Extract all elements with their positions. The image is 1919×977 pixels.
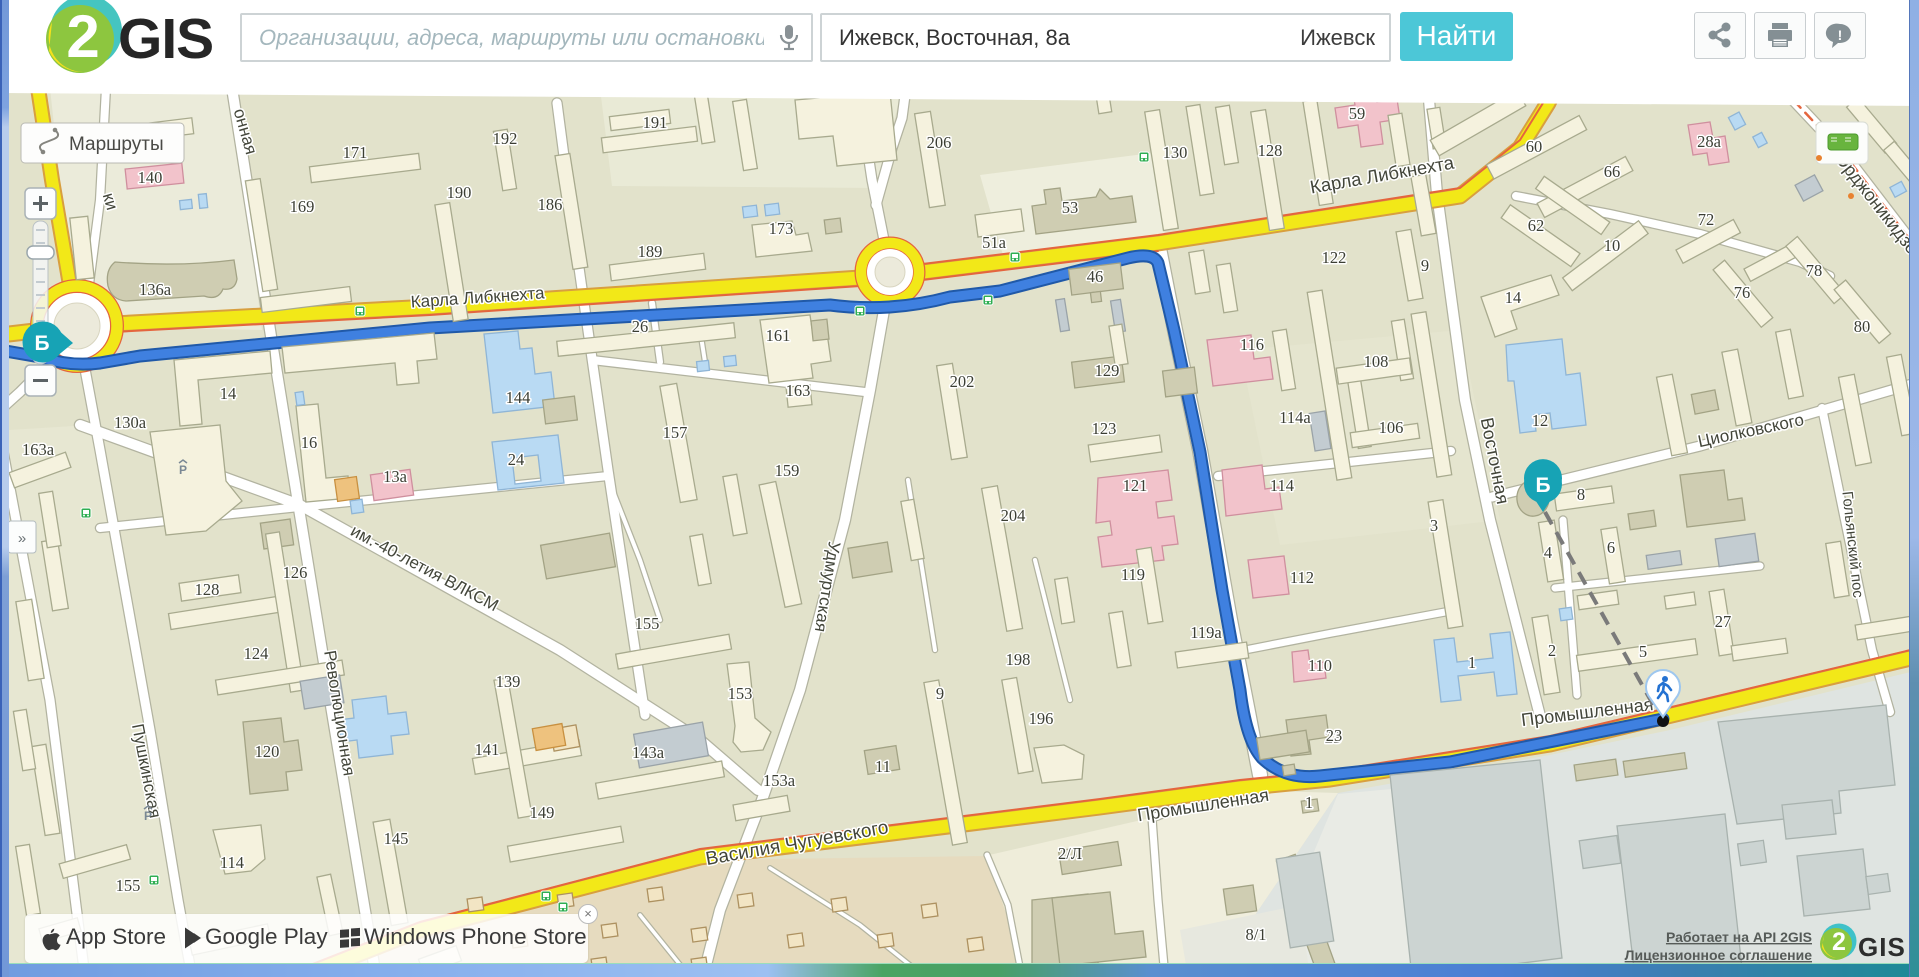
svg-text:119: 119 <box>1121 565 1145 584</box>
svg-text:159: 159 <box>775 461 800 480</box>
svg-text:126: 126 <box>283 563 308 582</box>
svg-text:121: 121 <box>1123 476 1148 495</box>
svg-text:163a: 163a <box>22 440 55 459</box>
svg-text:169: 169 <box>290 197 315 216</box>
svg-text:114: 114 <box>1270 476 1294 495</box>
svg-text:157: 157 <box>663 423 688 442</box>
svg-text:163: 163 <box>786 381 811 400</box>
svg-text:155: 155 <box>116 876 141 895</box>
svg-text:Б: Б <box>1535 474 1550 497</box>
svg-text:Р: Р <box>179 463 187 477</box>
svg-text:Б: Б <box>34 332 49 355</box>
svg-text:119а: 119а <box>1190 623 1222 642</box>
svg-text:123: 123 <box>1092 419 1117 438</box>
svg-text:72: 72 <box>1698 210 1715 229</box>
svg-text:28а: 28а <box>1697 132 1722 151</box>
svg-text:122: 122 <box>1322 248 1347 267</box>
svg-text:26: 26 <box>632 317 649 336</box>
svg-text:2: 2 <box>1548 641 1556 660</box>
svg-text:186: 186 <box>538 195 563 214</box>
svg-text:9: 9 <box>1421 256 1429 275</box>
svg-text:12: 12 <box>1532 411 1549 430</box>
svg-text:114а: 114а <box>1279 408 1311 427</box>
svg-text:173: 173 <box>769 219 794 238</box>
svg-text:141: 141 <box>475 740 500 759</box>
svg-text:124: 124 <box>244 644 269 663</box>
svg-text:144: 144 <box>506 388 531 407</box>
svg-text:60: 60 <box>1526 137 1543 156</box>
svg-text:114: 114 <box>220 853 244 872</box>
svg-text:153: 153 <box>728 684 753 703</box>
svg-text:51a: 51a <box>982 233 1007 252</box>
svg-text:140: 140 <box>138 168 163 187</box>
svg-text:!: ! <box>1838 27 1843 43</box>
svg-text:3: 3 <box>1430 516 1438 535</box>
svg-text:62: 62 <box>1528 216 1545 235</box>
svg-text:2: 2 <box>1832 928 1846 956</box>
svg-text:14: 14 <box>1505 288 1522 307</box>
svg-text:171: 171 <box>343 143 368 162</box>
svg-text:153a: 153a <box>763 771 796 790</box>
svg-text:78: 78 <box>1806 261 1823 280</box>
svg-text:143a: 143a <box>632 743 665 762</box>
svg-text:196: 196 <box>1029 709 1054 728</box>
svg-text:23: 23 <box>1326 726 1343 745</box>
svg-text:46: 46 <box>1087 267 1104 286</box>
svg-text:6: 6 <box>1607 538 1615 557</box>
svg-text:192: 192 <box>493 129 518 148</box>
svg-text:4: 4 <box>1544 543 1552 562</box>
svg-text:Р: Р <box>144 809 152 823</box>
svg-text:2/Л: 2/Л <box>1058 844 1082 863</box>
svg-text:9: 9 <box>936 684 944 703</box>
svg-text:145: 145 <box>384 829 409 848</box>
svg-text:2: 2 <box>66 3 99 70</box>
svg-text:13a: 13a <box>383 467 408 486</box>
svg-text:110: 110 <box>1308 656 1332 675</box>
svg-text:27: 27 <box>1715 612 1732 631</box>
svg-text:5: 5 <box>1639 642 1647 661</box>
svg-text:Работает на API 2GIS: Работает на API 2GIS <box>1666 929 1812 945</box>
svg-text:202: 202 <box>950 372 975 391</box>
svg-text:108: 108 <box>1364 352 1389 371</box>
svg-text:80: 80 <box>1854 317 1871 336</box>
svg-text:14: 14 <box>220 384 237 403</box>
svg-text:106: 106 <box>1379 418 1404 437</box>
svg-text:120: 120 <box>255 742 280 761</box>
svg-text:11: 11 <box>875 757 891 776</box>
svg-text:130a: 130a <box>114 413 147 432</box>
svg-text:112: 112 <box>1290 568 1314 587</box>
svg-text:139: 139 <box>496 672 521 691</box>
svg-text:Лицензионное соглашение: Лицензионное соглашение <box>1625 947 1813 963</box>
svg-text:»: » <box>18 530 26 547</box>
svg-text:24: 24 <box>508 450 525 469</box>
svg-text:66: 66 <box>1604 162 1621 181</box>
svg-text:189: 189 <box>638 242 663 261</box>
svg-text:8/1: 8/1 <box>1245 925 1266 944</box>
svg-text:116: 116 <box>1240 335 1264 354</box>
svg-text:136a: 136a <box>139 280 172 299</box>
svg-text:128: 128 <box>195 580 220 599</box>
svg-text:204: 204 <box>1001 506 1026 525</box>
svg-text:161: 161 <box>766 326 791 345</box>
svg-text:8: 8 <box>1577 485 1585 504</box>
svg-text:155: 155 <box>635 614 660 633</box>
svg-text:16: 16 <box>301 433 318 452</box>
svg-text:1: 1 <box>1305 793 1313 812</box>
svg-text:59: 59 <box>1349 104 1366 123</box>
svg-text:191: 191 <box>643 113 668 132</box>
svg-text:Маршруты: Маршруты <box>69 134 164 155</box>
svg-text:76: 76 <box>1734 283 1751 302</box>
svg-text:129: 129 <box>1095 361 1120 380</box>
svg-text:198: 198 <box>1006 650 1031 669</box>
svg-text:53: 53 <box>1062 198 1079 217</box>
svg-text:GIS: GIS <box>118 7 213 71</box>
svg-text:128: 128 <box>1258 141 1283 160</box>
svg-text:190: 190 <box>447 183 472 202</box>
svg-text:130: 130 <box>1163 143 1188 162</box>
svg-text:10: 10 <box>1604 236 1621 255</box>
svg-text:GIS: GIS <box>1858 932 1906 962</box>
svg-text:206: 206 <box>927 133 952 152</box>
svg-text:1: 1 <box>1468 653 1476 672</box>
svg-text:149: 149 <box>530 803 555 822</box>
